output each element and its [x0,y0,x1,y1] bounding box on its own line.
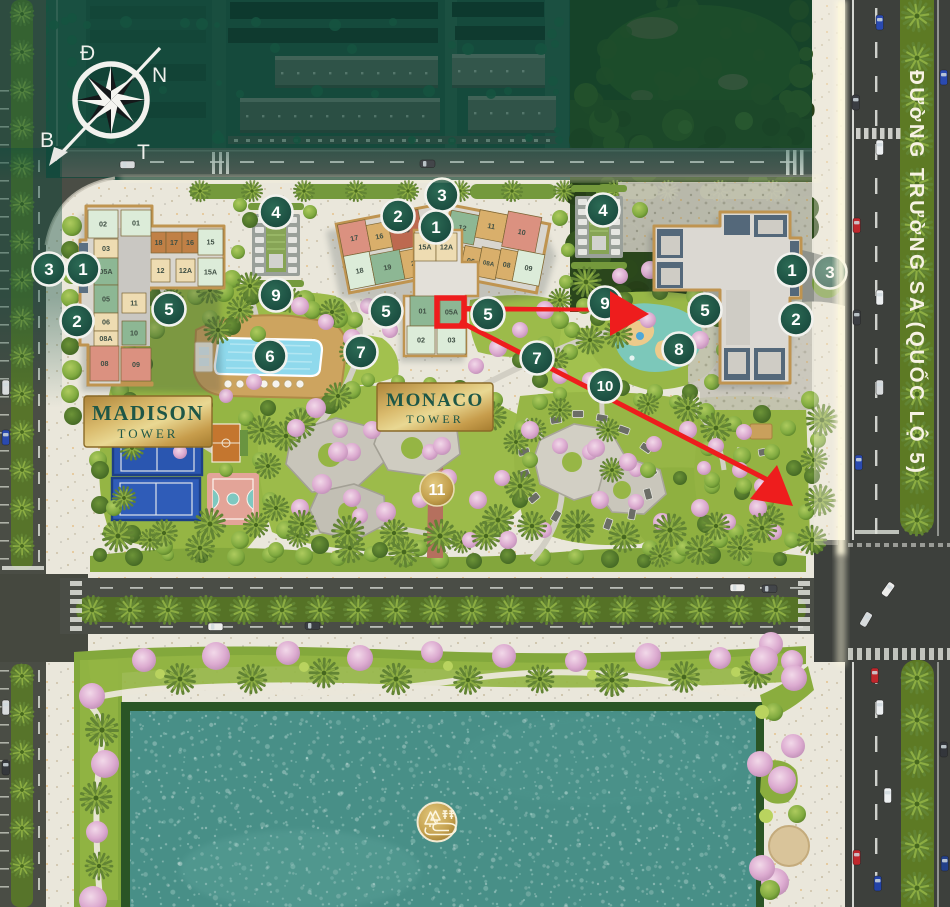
svg-text:10: 10 [130,329,138,338]
svg-text:5: 5 [483,305,492,324]
svg-text:18: 18 [155,238,163,247]
svg-text:TOWER: TOWER [118,426,179,441]
svg-text:2: 2 [72,312,81,331]
svg-text:9: 9 [600,294,609,313]
svg-text:10: 10 [597,378,614,395]
svg-text:T: T [137,141,150,164]
svg-text:4: 4 [271,203,281,222]
svg-text:06: 06 [102,318,110,327]
svg-text:8: 8 [674,340,683,359]
svg-text:1: 1 [787,261,796,280]
svg-text:1: 1 [78,260,87,279]
svg-text:10: 10 [517,227,527,237]
svg-text:02: 02 [417,336,425,345]
svg-text:05: 05 [102,295,110,304]
svg-text:MONACO: MONACO [386,390,484,411]
svg-text:MADISON: MADISON [92,401,204,425]
svg-text:3: 3 [44,260,53,279]
svg-text:5: 5 [164,300,173,319]
svg-text:03: 03 [102,244,110,253]
svg-text:16: 16 [375,231,385,241]
svg-text:N: N [152,64,167,87]
svg-text:12A: 12A [179,266,192,275]
svg-text:12A: 12A [440,243,453,252]
svg-text:6: 6 [265,347,274,366]
svg-text:7: 7 [532,349,541,368]
svg-text:01: 01 [419,307,427,316]
svg-text:11: 11 [429,482,446,499]
svg-text:2: 2 [393,207,402,226]
svg-text:09: 09 [132,360,140,369]
svg-text:17: 17 [349,233,359,243]
svg-text:05A: 05A [445,308,458,317]
svg-text:12: 12 [157,266,165,275]
svg-text:05A: 05A [99,267,112,276]
svg-text:5: 5 [381,302,390,321]
svg-text:08A: 08A [99,334,112,343]
svg-text:1: 1 [431,218,440,237]
svg-text:2: 2 [791,310,800,329]
svg-text:16: 16 [186,238,194,247]
svg-text:19: 19 [383,262,393,272]
svg-text:01: 01 [132,219,140,228]
svg-text:15: 15 [207,238,215,247]
svg-text:02: 02 [99,220,107,229]
svg-text:3: 3 [437,186,446,205]
svg-text:4: 4 [598,201,608,220]
svg-text:03: 03 [448,336,456,345]
svg-text:7: 7 [356,343,365,362]
svg-text:Đ: Đ [80,42,95,65]
svg-text:ĐƯờNG TRƯờNG SA (QUỐC LỘ 5): ĐƯờNG TRƯờNG SA (QUỐC LỘ 5) [905,70,929,476]
svg-text:08: 08 [101,359,109,368]
svg-text:15A: 15A [418,243,431,252]
svg-text:9: 9 [271,286,280,305]
svg-text:15A: 15A [204,268,217,277]
svg-text:09: 09 [524,263,534,273]
svg-text:17: 17 [170,238,178,247]
svg-text:11: 11 [130,299,138,308]
svg-text:B: B [40,129,54,152]
svg-text:5: 5 [700,301,709,320]
svg-text:08: 08 [502,262,511,270]
svg-text:TOWER: TOWER [406,412,463,426]
svg-text:18: 18 [355,266,365,276]
